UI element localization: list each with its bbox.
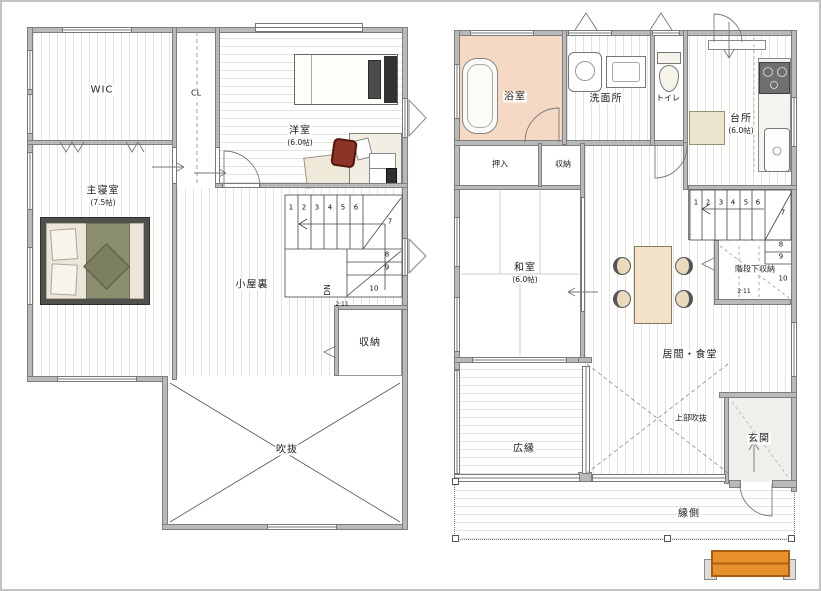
stair-num: 1 bbox=[289, 205, 293, 212]
window bbox=[57, 376, 137, 382]
veranda-post bbox=[452, 535, 459, 542]
dining-chair bbox=[613, 290, 631, 308]
label-kitchen-size: (6.0帖) bbox=[727, 127, 754, 135]
desk-chair bbox=[330, 137, 358, 168]
label-engawa: 縁側 bbox=[677, 509, 701, 520]
bed-western-headboard bbox=[384, 56, 397, 103]
window bbox=[472, 357, 567, 363]
stair-num: 4 bbox=[731, 200, 735, 207]
sliding-glass bbox=[582, 366, 590, 474]
window bbox=[27, 152, 33, 210]
wall bbox=[27, 140, 177, 145]
bed-master-pillow bbox=[50, 263, 78, 295]
wall bbox=[454, 185, 585, 190]
label-storage-2f: 収納 bbox=[358, 338, 382, 349]
room-closet-cl bbox=[177, 33, 216, 185]
sliding-glass bbox=[454, 474, 580, 482]
kitchen-stove bbox=[759, 62, 790, 94]
label-oshiire: 押入 bbox=[491, 161, 509, 170]
stair-num: 7 bbox=[781, 210, 785, 217]
wall bbox=[683, 142, 688, 190]
label-western-room: 洋室 bbox=[288, 126, 312, 137]
veranda-post bbox=[664, 535, 671, 542]
label-master-bedroom: 主寝室 bbox=[86, 186, 121, 197]
door-opening bbox=[222, 183, 260, 188]
label-down: DN bbox=[324, 283, 332, 296]
label-wic: WIC bbox=[90, 85, 115, 96]
window bbox=[255, 23, 363, 32]
label-genkan: 玄関 bbox=[747, 434, 771, 445]
veranda-post bbox=[788, 535, 795, 542]
bathtub-inner bbox=[467, 64, 493, 128]
label-cl: CL bbox=[190, 90, 202, 99]
stair-num: 4 bbox=[328, 205, 332, 212]
sliding-door bbox=[581, 197, 585, 312]
kitchen-sink bbox=[764, 128, 790, 172]
window bbox=[791, 322, 797, 377]
window bbox=[27, 94, 33, 134]
washing-machine-drum bbox=[575, 61, 595, 81]
wall bbox=[683, 30, 688, 146]
window bbox=[454, 217, 460, 267]
room-hiroen bbox=[460, 363, 582, 474]
label-hiroen: 広縁 bbox=[512, 444, 536, 455]
stair-num: 3 bbox=[315, 205, 319, 212]
window bbox=[652, 30, 680, 36]
window bbox=[62, 27, 132, 33]
stair-num: 5 bbox=[744, 200, 748, 207]
label-washroom: 洗面所 bbox=[589, 94, 624, 105]
window bbox=[267, 524, 337, 530]
stair-num: 6 bbox=[354, 205, 358, 212]
stairs-1f bbox=[688, 190, 791, 240]
stair-num: 6 bbox=[756, 200, 760, 207]
wall bbox=[724, 397, 729, 484]
wall bbox=[714, 299, 791, 305]
dining-table bbox=[634, 246, 672, 324]
label-master-bedroom-size: (7.5帖) bbox=[89, 199, 116, 207]
window bbox=[402, 238, 408, 276]
wall bbox=[714, 240, 719, 304]
wall bbox=[650, 30, 655, 146]
stair-num: 9 bbox=[779, 254, 783, 261]
stair-num: 9 bbox=[385, 265, 389, 272]
vanity-basin bbox=[612, 62, 640, 82]
back-porch-step bbox=[708, 40, 766, 50]
bed-western-pillow bbox=[368, 60, 381, 99]
window bbox=[791, 97, 797, 147]
stair-num: 5 bbox=[341, 205, 345, 212]
dining-chair bbox=[613, 257, 631, 275]
label-void-2f: 吹抜 bbox=[275, 445, 299, 456]
label-washitsu: 和室 bbox=[513, 263, 537, 274]
stair-num: 1 bbox=[694, 200, 698, 207]
label-toilet: トイレ bbox=[655, 95, 681, 104]
wall bbox=[729, 480, 741, 488]
label-storage-1f: 収納 bbox=[554, 161, 572, 170]
label-western-room-size: (6.0帖) bbox=[286, 139, 313, 147]
wall bbox=[772, 480, 797, 488]
toilet-tank bbox=[657, 52, 681, 64]
window bbox=[568, 30, 612, 36]
wall bbox=[334, 305, 339, 376]
label-void-above: 上部吹抜 bbox=[674, 415, 708, 424]
label-kitchen: 台所 bbox=[729, 114, 753, 125]
wall bbox=[172, 27, 177, 380]
dining-chair bbox=[675, 290, 693, 308]
label-understair-storage: 階段下収納 bbox=[734, 266, 776, 275]
stair-num: 2 bbox=[302, 205, 306, 212]
label-living-dining: 居間・食堂 bbox=[662, 350, 719, 361]
wall bbox=[538, 143, 542, 187]
label-washitsu-size: (6.0帖) bbox=[511, 276, 538, 284]
veranda-post bbox=[452, 478, 459, 485]
sliding-door bbox=[215, 147, 220, 184]
bed-western bbox=[294, 54, 398, 105]
window bbox=[470, 30, 534, 36]
sliding-door bbox=[172, 147, 177, 184]
wall bbox=[162, 376, 168, 530]
window bbox=[402, 98, 408, 138]
stair-num: 10 bbox=[779, 276, 788, 283]
bed-master-pillow bbox=[50, 228, 78, 261]
room-engawa bbox=[454, 484, 795, 540]
stair-num: 7 bbox=[388, 219, 392, 226]
wall bbox=[719, 392, 797, 398]
stair-num: 8 bbox=[385, 252, 389, 259]
floor-plan-canvas: WIC CL 洋室 (6.0帖) 主寝室 (7.5帖) 小屋裏 収納 吹抜 DN… bbox=[0, 0, 821, 591]
wall bbox=[688, 234, 765, 240]
window bbox=[454, 297, 460, 352]
stair-num: 3 bbox=[719, 200, 723, 207]
stair-note-1f: 2·11 bbox=[737, 289, 750, 295]
room-washitsu bbox=[460, 190, 580, 357]
wall bbox=[688, 190, 693, 240]
stair-note-2f: 2·11 bbox=[335, 302, 348, 308]
bed-western-foldline bbox=[311, 55, 312, 104]
wall-stub bbox=[578, 357, 592, 363]
stair-num: 2 bbox=[706, 200, 710, 207]
sliding-glass bbox=[592, 474, 726, 482]
label-bath: 浴室 bbox=[503, 92, 527, 103]
wall bbox=[688, 185, 797, 190]
stair-num: 10 bbox=[370, 286, 379, 293]
window bbox=[27, 50, 33, 90]
dining-chair bbox=[675, 257, 693, 275]
stair-num: 8 bbox=[779, 242, 783, 249]
wall bbox=[562, 30, 567, 145]
kitchen-island bbox=[689, 111, 725, 145]
window bbox=[27, 247, 33, 305]
veranda-window bbox=[454, 370, 460, 474]
window bbox=[454, 64, 460, 119]
entrance-step-bench bbox=[711, 550, 790, 577]
label-attic: 小屋裏 bbox=[235, 280, 270, 291]
